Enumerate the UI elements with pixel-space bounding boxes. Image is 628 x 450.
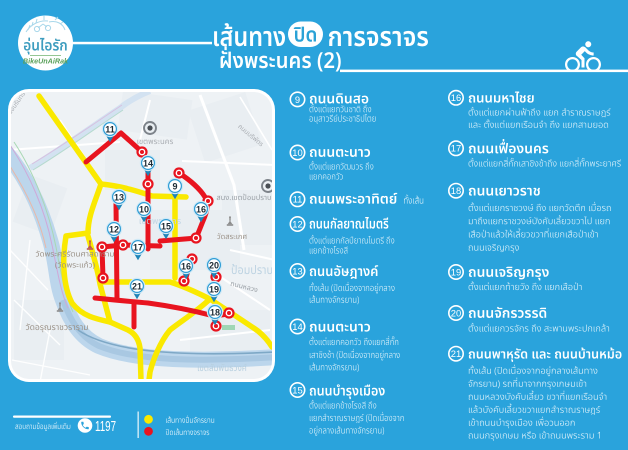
svg-text:12: 12	[109, 224, 119, 234]
svg-text:14: 14	[292, 321, 302, 332]
svg-text:17: 17	[451, 143, 461, 154]
svg-text:17: 17	[133, 242, 143, 252]
svg-text:16: 16	[181, 261, 191, 271]
svg-text:10: 10	[139, 204, 149, 214]
svg-text:9: 9	[295, 94, 300, 105]
svg-text:16: 16	[196, 204, 206, 214]
svg-text:14: 14	[143, 158, 153, 168]
svg-text:10: 10	[292, 147, 302, 158]
svg-text:11: 11	[293, 194, 303, 205]
svg-text:15: 15	[161, 221, 171, 231]
svg-text:20: 20	[451, 307, 461, 318]
svg-text:16: 16	[451, 92, 461, 103]
svg-text:21: 21	[132, 281, 142, 291]
svg-text:19: 19	[451, 266, 461, 277]
svg-text:12: 12	[292, 218, 302, 229]
svg-text:13: 13	[114, 192, 124, 202]
svg-text:19: 19	[209, 284, 219, 294]
svg-text:9: 9	[172, 181, 177, 191]
svg-text:13: 13	[292, 265, 302, 276]
svg-text:1197: 1197	[95, 418, 116, 435]
svg-text:15: 15	[292, 384, 302, 395]
svg-text:11: 11	[105, 124, 115, 134]
svg-text:21: 21	[451, 348, 461, 359]
svg-text:18: 18	[451, 185, 461, 196]
svg-text:BikeUnAiRak: BikeUnAiRak	[23, 57, 69, 66]
svg-text:20: 20	[209, 260, 219, 270]
svg-text:18: 18	[210, 307, 220, 317]
